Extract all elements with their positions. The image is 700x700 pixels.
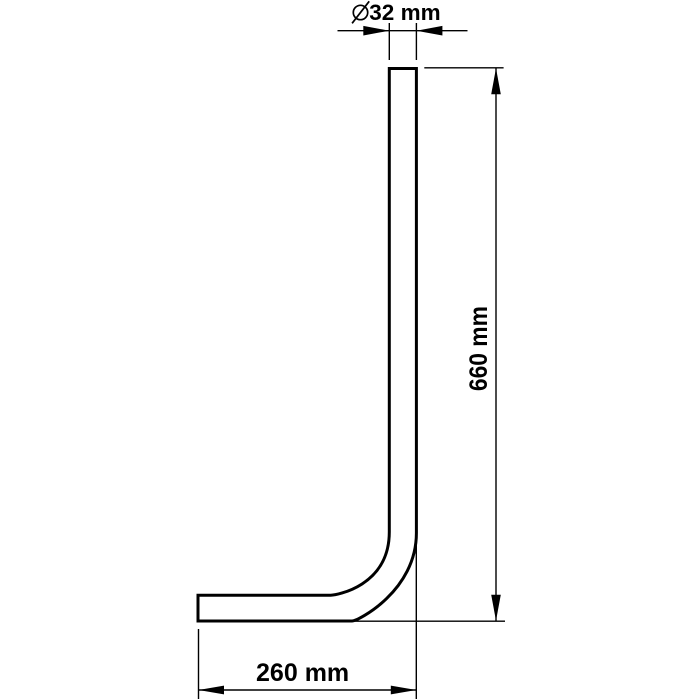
svg-text:660 mm: 660 mm: [465, 306, 493, 391]
svg-text:32 mm: 32 mm: [369, 0, 440, 25]
svg-text:260 mm: 260 mm: [256, 659, 349, 687]
